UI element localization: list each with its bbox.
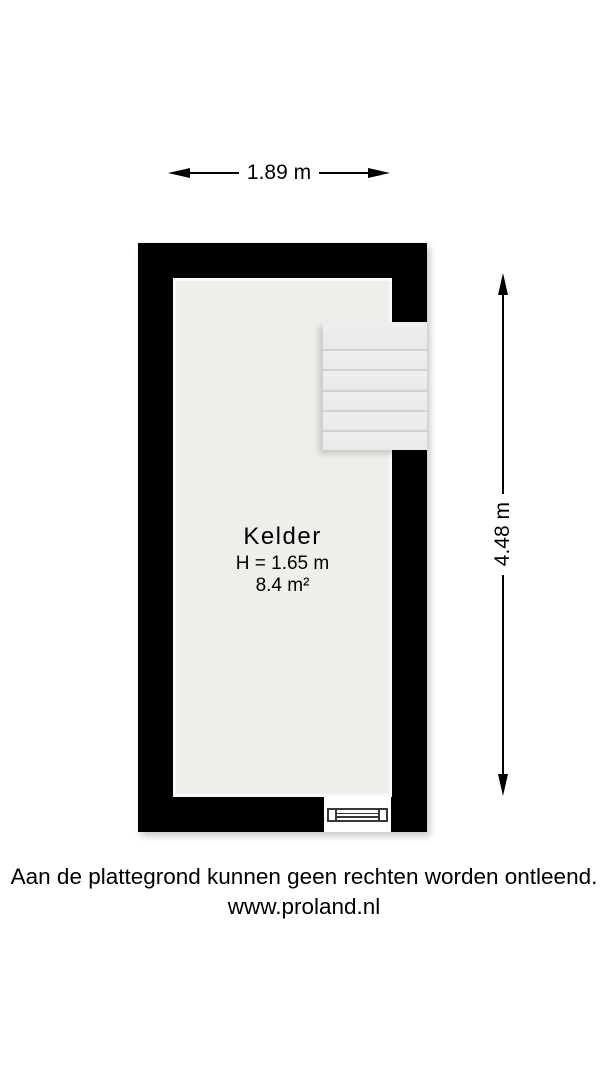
arrow-down-icon xyxy=(498,774,508,796)
width-dimension: 1.89 m xyxy=(168,160,390,186)
room-floor-kelder: Kelder H = 1.65 m 8.4 m² xyxy=(173,278,392,797)
width-dimension-label: 1.89 m xyxy=(239,160,319,186)
window-icon xyxy=(327,808,388,822)
room-area: 8.4 m² xyxy=(173,575,392,597)
stair-tread xyxy=(323,412,427,432)
room-ceiling-height: H = 1.65 m xyxy=(173,553,392,575)
window-frame-post xyxy=(329,810,337,820)
height-dimension: 4.48 m xyxy=(490,273,516,796)
dimension-line xyxy=(502,575,504,774)
stairs xyxy=(323,322,427,450)
floorplan-walls: Kelder H = 1.65 m 8.4 m² xyxy=(138,243,427,832)
arrow-up-icon xyxy=(498,273,508,295)
dimension-line xyxy=(190,172,239,174)
arrow-right-icon xyxy=(368,168,390,178)
window-pane-line xyxy=(337,813,378,815)
footer: Aan de plattegrond kunnen geen rechten w… xyxy=(0,862,608,922)
window-frame-post xyxy=(378,810,386,820)
disclaimer-text: Aan de plattegrond kunnen geen rechten w… xyxy=(0,862,608,892)
stair-tread xyxy=(323,371,427,391)
stair-tread xyxy=(323,351,427,371)
stair-tread xyxy=(323,322,427,351)
room-label: Kelder H = 1.65 m 8.4 m² xyxy=(173,524,392,597)
window-pane-line xyxy=(337,816,378,818)
dimension-line xyxy=(502,295,504,494)
height-dimension-label: 4.48 m xyxy=(491,494,515,574)
website-text: www.proland.nl xyxy=(0,892,608,922)
stair-tread xyxy=(323,432,427,450)
window-glazing xyxy=(337,810,378,820)
arrow-left-icon xyxy=(168,168,190,178)
dimension-line xyxy=(319,172,368,174)
room-name: Kelder xyxy=(173,524,392,550)
stair-tread xyxy=(323,392,427,412)
window-opening xyxy=(324,797,391,832)
